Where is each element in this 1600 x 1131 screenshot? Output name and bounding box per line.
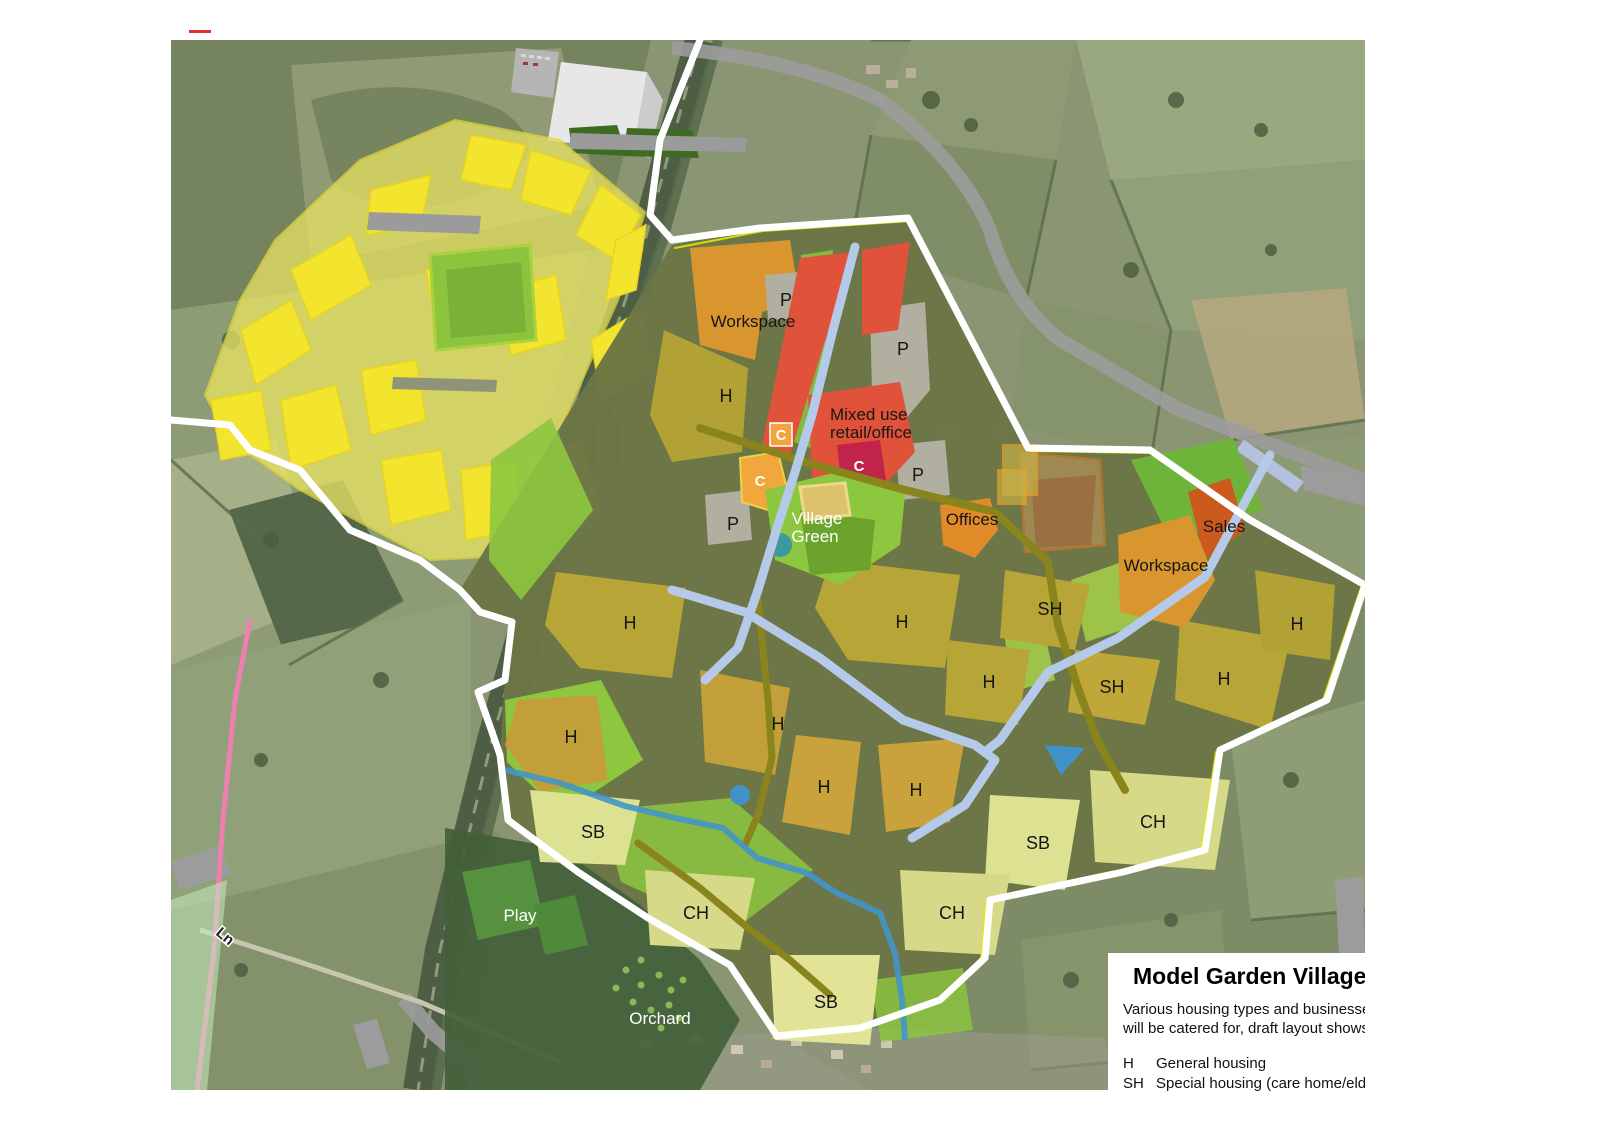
label-h-4: H bbox=[1291, 614, 1304, 634]
label-sh-1: SH bbox=[1037, 599, 1062, 619]
map-canvas: P Workspace H P Mixed use retail/office … bbox=[171, 40, 1365, 1090]
legend-panel: Model Garden Village Various housing typ… bbox=[1108, 953, 1365, 1097]
label-village-green-1: Village bbox=[792, 509, 843, 528]
legend-title: Model Garden Village bbox=[1133, 963, 1365, 990]
label-ch-3: CH bbox=[939, 903, 965, 923]
label-h-8: H bbox=[772, 714, 785, 734]
label-h-2: H bbox=[896, 612, 909, 632]
red-mark bbox=[189, 30, 211, 33]
label-c-3: C bbox=[854, 458, 865, 475]
legend-label-h: General housing bbox=[1156, 1054, 1266, 1074]
legend-code-sh: SH bbox=[1123, 1074, 1156, 1094]
label-c-1: C bbox=[776, 427, 787, 444]
label-mixed-use-1: Mixed use bbox=[830, 405, 907, 424]
legend-entry-sh: SH Special housing (care home/elderl bbox=[1123, 1074, 1365, 1094]
label-workspace-nw: Workspace bbox=[711, 312, 796, 331]
legend-entry-h: H General housing bbox=[1123, 1054, 1365, 1074]
label-h-6: H bbox=[1218, 669, 1231, 689]
label-offices: Offices bbox=[946, 510, 999, 529]
label-sb-1: SB bbox=[581, 822, 605, 842]
pond-1 bbox=[730, 785, 750, 805]
label-p-3: P bbox=[912, 465, 924, 485]
page: P Workspace H P Mixed use retail/office … bbox=[0, 0, 1600, 1131]
label-p-1: P bbox=[780, 290, 792, 310]
label-ch-1: CH bbox=[1140, 812, 1166, 832]
label-p-2: P bbox=[897, 339, 909, 359]
label-orchard: Orchard bbox=[629, 1009, 690, 1028]
label-h-9: H bbox=[818, 777, 831, 797]
masterplan-map: P Workspace H P Mixed use retail/office … bbox=[171, 40, 1365, 1090]
label-c-2: C bbox=[755, 473, 766, 490]
label-ch-2: CH bbox=[683, 903, 709, 923]
label-h-1: H bbox=[720, 386, 733, 406]
road-bar-right bbox=[1335, 876, 1365, 953]
legend-body-line-1: Various housing types and businesses bbox=[1123, 1000, 1365, 1019]
label-h-5: H bbox=[983, 672, 996, 692]
label-h-10: H bbox=[910, 780, 923, 800]
legend-entries: H General housing SH Special housing (ca… bbox=[1123, 1054, 1365, 1094]
legend-body-line-2: will be catered for, draft layout shows; bbox=[1123, 1019, 1365, 1038]
legend-code-h: H bbox=[1123, 1054, 1156, 1074]
label-h-3: H bbox=[624, 613, 637, 633]
label-h-7: H bbox=[565, 727, 578, 747]
label-p-4: P bbox=[727, 514, 739, 534]
label-sh-2: SH bbox=[1099, 677, 1124, 697]
label-mixed-use-2: retail/office bbox=[830, 423, 912, 442]
label-sb-2: SB bbox=[1026, 833, 1050, 853]
legend-label-sh: Special housing (care home/elderl bbox=[1156, 1074, 1365, 1094]
label-sales: Sales bbox=[1203, 517, 1246, 536]
label-play: Play bbox=[503, 906, 537, 925]
label-workspace-e: Workspace bbox=[1124, 556, 1209, 575]
label-village-green-2: Green bbox=[791, 527, 838, 546]
label-sb-3: SB bbox=[814, 992, 838, 1012]
